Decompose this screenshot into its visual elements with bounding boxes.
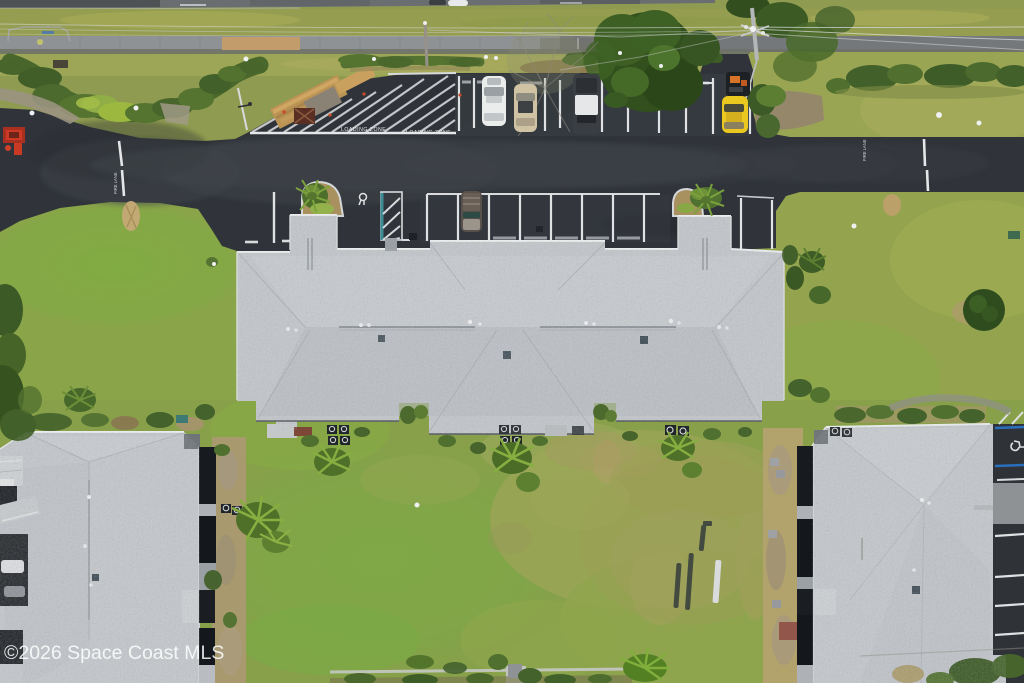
svg-text:LOADING ZONE: LOADING ZONE <box>341 127 386 133</box>
svg-text:FIRE LANE: FIRE LANE <box>113 172 118 194</box>
svg-text:©2026 Space Coast MLS: ©2026 Space Coast MLS <box>4 642 224 664</box>
svg-text:FIRE LANE: FIRE LANE <box>862 139 867 161</box>
svg-text:LOADING ZONE: LOADING ZONE <box>406 130 451 136</box>
